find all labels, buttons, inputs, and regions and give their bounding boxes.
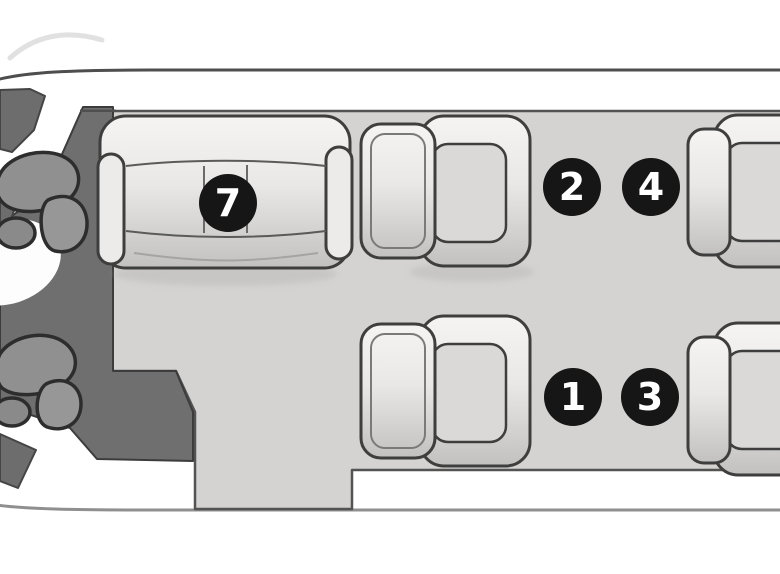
club-seat-1	[361, 316, 530, 466]
seat-badge-4: 4	[622, 158, 680, 216]
seat-badge-7: 7	[199, 174, 257, 232]
sofa-armrest-right	[326, 147, 352, 259]
pilot-seat-bottom	[0, 335, 81, 428]
floorplan-graphic	[0, 0, 780, 574]
seat-badge-1: 1	[544, 368, 602, 426]
pilot-seat-top	[0, 152, 87, 251]
seat-badge-2: 2	[543, 158, 601, 216]
cabin-floorplan-diagram: 7 2 4 1 3	[0, 0, 780, 574]
sofa-armrest-left	[98, 154, 124, 264]
seat-badge-3: 3	[621, 368, 679, 426]
club-seat-3	[688, 323, 780, 475]
club-seat-4	[688, 115, 780, 267]
club-seat-2	[361, 116, 530, 266]
